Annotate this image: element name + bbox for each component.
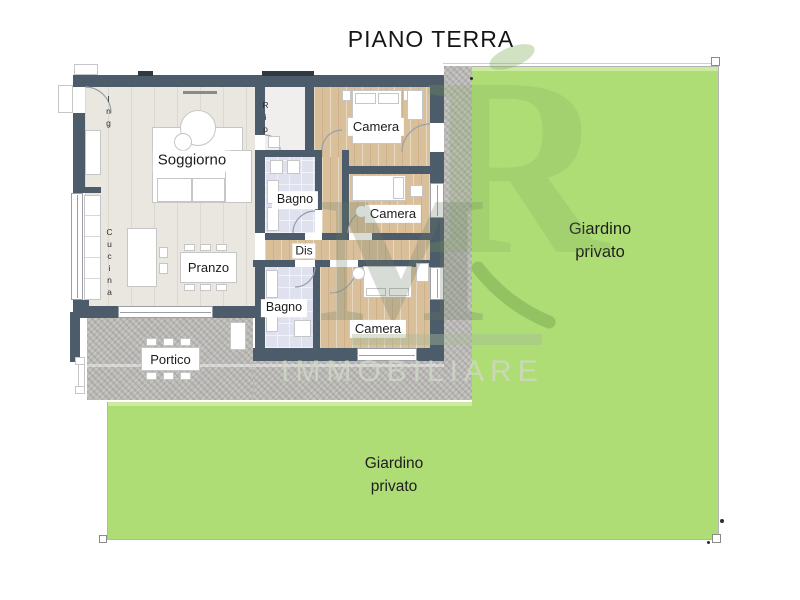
toilet (267, 207, 279, 231)
page-title: PIANO TERRA (331, 26, 531, 53)
porch-post (75, 357, 85, 365)
wall-bagno2-right (313, 267, 320, 348)
window-marker-top2 (262, 71, 314, 76)
wall-pranzo-bottom-b (213, 306, 255, 318)
portico-chair (180, 372, 191, 380)
floor-disimpegno (265, 240, 430, 260)
porch-post (75, 386, 85, 394)
portico-cabinet (230, 322, 246, 350)
anchor-dot (707, 541, 710, 544)
camera2-text: Camera (370, 206, 416, 221)
pillow (355, 93, 376, 104)
sink-unit (287, 160, 300, 174)
soggiorno-text: Soggiorno (158, 152, 226, 169)
wall-bottom-a (253, 348, 357, 361)
corner-handle (711, 57, 720, 66)
dis-text: Dis (295, 244, 312, 258)
portico-chair (163, 338, 174, 346)
pranzo-label: Pranzo (188, 260, 229, 275)
wall-pranzo-bottom-a (74, 306, 118, 318)
wardrobe-entry (85, 130, 101, 175)
room-label-camera2: Camera (365, 205, 421, 223)
room-label-rip: Rip (261, 100, 270, 136)
room-label-camera1: Camera (348, 118, 404, 136)
pillow (378, 93, 399, 104)
room-label-bagno1: Bagno (272, 191, 318, 209)
corner-handle (712, 534, 721, 543)
wall-left-upper (73, 113, 85, 190)
kitchen-island (127, 228, 157, 287)
wall-bottom-b (417, 348, 444, 361)
nightstand (342, 90, 351, 101)
garden-bottom-label: Giardino privato (333, 452, 455, 498)
anchor-dot (470, 77, 473, 80)
dining-chair (200, 244, 211, 251)
wall-band2-a (253, 260, 295, 267)
sofa-seat-b (192, 178, 225, 202)
sliding-door-portico (118, 306, 213, 318)
wardrobe-camera3 (416, 263, 429, 282)
wall-rip-right (305, 87, 314, 150)
tv-unit (183, 91, 217, 94)
island-stool-2 (159, 263, 168, 274)
wall-right-a (430, 75, 444, 123)
side-table-camera3 (352, 267, 365, 280)
nightstand (410, 185, 423, 197)
garden-edge-highlight (108, 402, 472, 406)
portico-table: Portico (141, 347, 200, 371)
pillow (393, 177, 404, 199)
dining-chair (184, 284, 195, 291)
garden-bottom-label-line1: Giardino (333, 452, 455, 475)
window-kitchen (71, 193, 83, 300)
portico-label: Portico (150, 352, 190, 367)
window-camera3-east (430, 267, 444, 300)
wall-band2-b (315, 260, 330, 267)
portico-chair (180, 338, 191, 346)
room-label-ingresso: Ing (104, 94, 113, 130)
coffee-table-small (174, 133, 192, 151)
wall-top (73, 75, 444, 87)
bagno2-text: Bagno (266, 300, 302, 314)
corner-handle (99, 535, 107, 543)
bagno1-text: Bagno (277, 192, 313, 206)
wardrobe-camera1 (407, 90, 423, 120)
room-label-dis: Dis (292, 244, 315, 259)
room-label-soggiorno: Soggiorno (153, 151, 231, 172)
floor-corridor-stub (322, 157, 342, 240)
wall-right-b (430, 152, 444, 183)
kitchen-counter (84, 195, 101, 300)
wall-band1-a (265, 233, 305, 240)
pillow (389, 288, 409, 296)
portico-chair (146, 372, 157, 380)
storage-box (268, 136, 280, 148)
island-stool-1 (159, 247, 168, 258)
paving-east-strip (444, 66, 472, 400)
wall-band1-c (372, 233, 430, 240)
wall-rip-left-b (255, 150, 265, 233)
bathtub (294, 320, 311, 337)
room-label-cucina: Cucina (105, 227, 114, 299)
wall-camera1-2-divider (342, 166, 430, 174)
window-marker-top1 (138, 71, 153, 76)
wall-right-c (430, 218, 444, 267)
watermark-underline (352, 334, 542, 345)
wall-rip-bottom (258, 150, 322, 157)
garden-outline-top (443, 63, 720, 64)
dining-table: Pranzo (180, 252, 237, 283)
floor-plan-page: PIANO TERRA Giardino privato Giardino pr… (0, 0, 800, 600)
wall-camera2-left (342, 150, 349, 240)
portico-chair (163, 372, 174, 380)
entry-step (58, 85, 73, 113)
window-camera2 (430, 183, 444, 218)
garden-right-label: Giardino privato (539, 218, 661, 264)
window-camera3-south (357, 348, 417, 361)
dining-chair (200, 284, 211, 291)
anchor-dot (720, 519, 724, 523)
pillow (366, 288, 386, 296)
dining-chair (216, 244, 227, 251)
garden-right-label-line1: Giardino (539, 218, 661, 241)
garden-bottom-label-line2: privato (333, 475, 455, 498)
sofa-seat-a (157, 178, 192, 202)
portico-chair (146, 338, 157, 346)
garden-edge-highlight (472, 67, 718, 71)
wall-left-lower (70, 312, 80, 362)
garden-right-label-line2: privato (539, 241, 661, 264)
sink-unit (270, 160, 283, 174)
garden-right (472, 66, 719, 540)
dining-chair (184, 244, 195, 251)
dining-chair (216, 284, 227, 291)
wall-band1-b (322, 233, 347, 240)
room-label-bagno2: Bagno (261, 299, 307, 317)
camera1-text: Camera (353, 119, 399, 134)
shower (266, 270, 278, 298)
step-top-left (74, 64, 98, 75)
